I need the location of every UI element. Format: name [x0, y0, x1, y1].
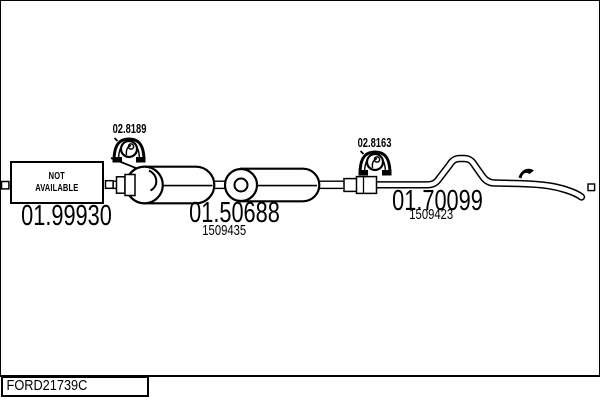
- not-available-line1: NOT: [35, 171, 78, 183]
- reference-number-tail-pipe: 1509423: [381, 207, 481, 222]
- catalog-code-box: FORD21739C: [1, 376, 149, 397]
- clamp-icon: [359, 151, 392, 176]
- mount-square: [106, 181, 114, 189]
- catalog-code: FORD21739C: [3, 379, 87, 394]
- not-available-label: NOT AVAILABLE: [35, 171, 78, 194]
- not-available-line2: AVAILABLE: [35, 183, 78, 195]
- reference-number-centre-silencer: 1509435: [174, 223, 274, 238]
- left-mount-square: [2, 182, 9, 189]
- part-number-front-pipe: 01.99930: [6, 202, 106, 231]
- tailpipe-end-square: [588, 184, 595, 191]
- exhaust-diagram: NOT AVAILABLE 01.99930 01.50688 1509435 …: [0, 0, 600, 400]
- part-number-front-clamp: 02.8189: [106, 122, 152, 135]
- part-number-rear-clamp: 02.8163: [351, 136, 397, 149]
- clamp-icon: [113, 138, 146, 163]
- not-available-box: NOT AVAILABLE: [10, 161, 104, 204]
- pipe-hanger-hook: [519, 169, 535, 179]
- inlet-collar: [106, 175, 136, 196]
- connector-sleeve: [344, 177, 377, 194]
